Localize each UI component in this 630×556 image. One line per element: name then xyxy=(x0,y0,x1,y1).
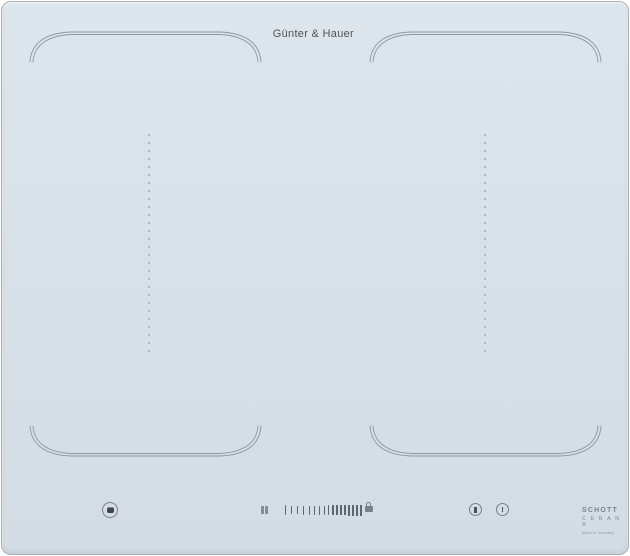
pause-icon xyxy=(474,507,477,513)
lock-icon xyxy=(365,506,373,512)
slider-bar[interactable] xyxy=(324,506,325,515)
slider-bar[interactable] xyxy=(332,505,334,515)
schott-product-label: C E R A N ® xyxy=(582,516,628,529)
slider-bar[interactable] xyxy=(336,505,338,515)
slider-bar[interactable] xyxy=(309,506,310,515)
slider-bar[interactable] xyxy=(328,505,329,515)
zone-bracket-curve xyxy=(29,30,262,63)
zone-bracket-curve xyxy=(369,425,602,458)
bridge-icon xyxy=(261,506,264,514)
zone-bracket-curve xyxy=(369,30,602,63)
zone-bracket-curve xyxy=(29,425,262,458)
bridge-zones-button[interactable] xyxy=(259,505,269,515)
schott-maker-label: SCHOTT xyxy=(582,507,628,516)
slider-bar[interactable] xyxy=(319,506,320,515)
schott-origin-label: Made in Germany xyxy=(582,531,628,535)
flex-zone-divider-left xyxy=(148,134,150,354)
power-button[interactable] xyxy=(102,502,118,518)
slider-bar[interactable] xyxy=(297,506,298,514)
slider-bar[interactable] xyxy=(348,505,350,516)
slider-bar[interactable] xyxy=(340,505,342,515)
timer-icon xyxy=(502,507,504,512)
power-slider[interactable] xyxy=(285,503,362,517)
zone-bracket-bottom-right xyxy=(369,425,602,458)
slider-bar[interactable] xyxy=(352,505,354,516)
pause-button[interactable] xyxy=(469,503,482,516)
slider-bar[interactable] xyxy=(314,506,315,515)
flex-zone-divider-right xyxy=(484,134,486,354)
slider-bar[interactable] xyxy=(344,505,346,515)
brand-logo: Günter & Hauer xyxy=(273,28,354,40)
slider-bar[interactable] xyxy=(285,505,286,515)
slider-bar[interactable] xyxy=(291,506,292,514)
zone-bracket-bottom-left xyxy=(29,425,262,458)
zone-bracket-top-left xyxy=(29,30,262,63)
cooktop-surface: Günter & Hauer xyxy=(1,1,629,555)
power-icon xyxy=(107,507,114,513)
timer-button[interactable] xyxy=(496,503,509,516)
schott-ceran-logo: SCHOTT C E R A N ® Made in Germany xyxy=(582,507,628,536)
child-lock-button[interactable] xyxy=(363,502,374,516)
slider-bar[interactable] xyxy=(303,506,304,515)
slider-bar[interactable] xyxy=(360,505,362,516)
slider-bar[interactable] xyxy=(356,505,358,516)
bridge-icon xyxy=(265,506,268,514)
zone-bracket-top-right xyxy=(369,30,602,63)
